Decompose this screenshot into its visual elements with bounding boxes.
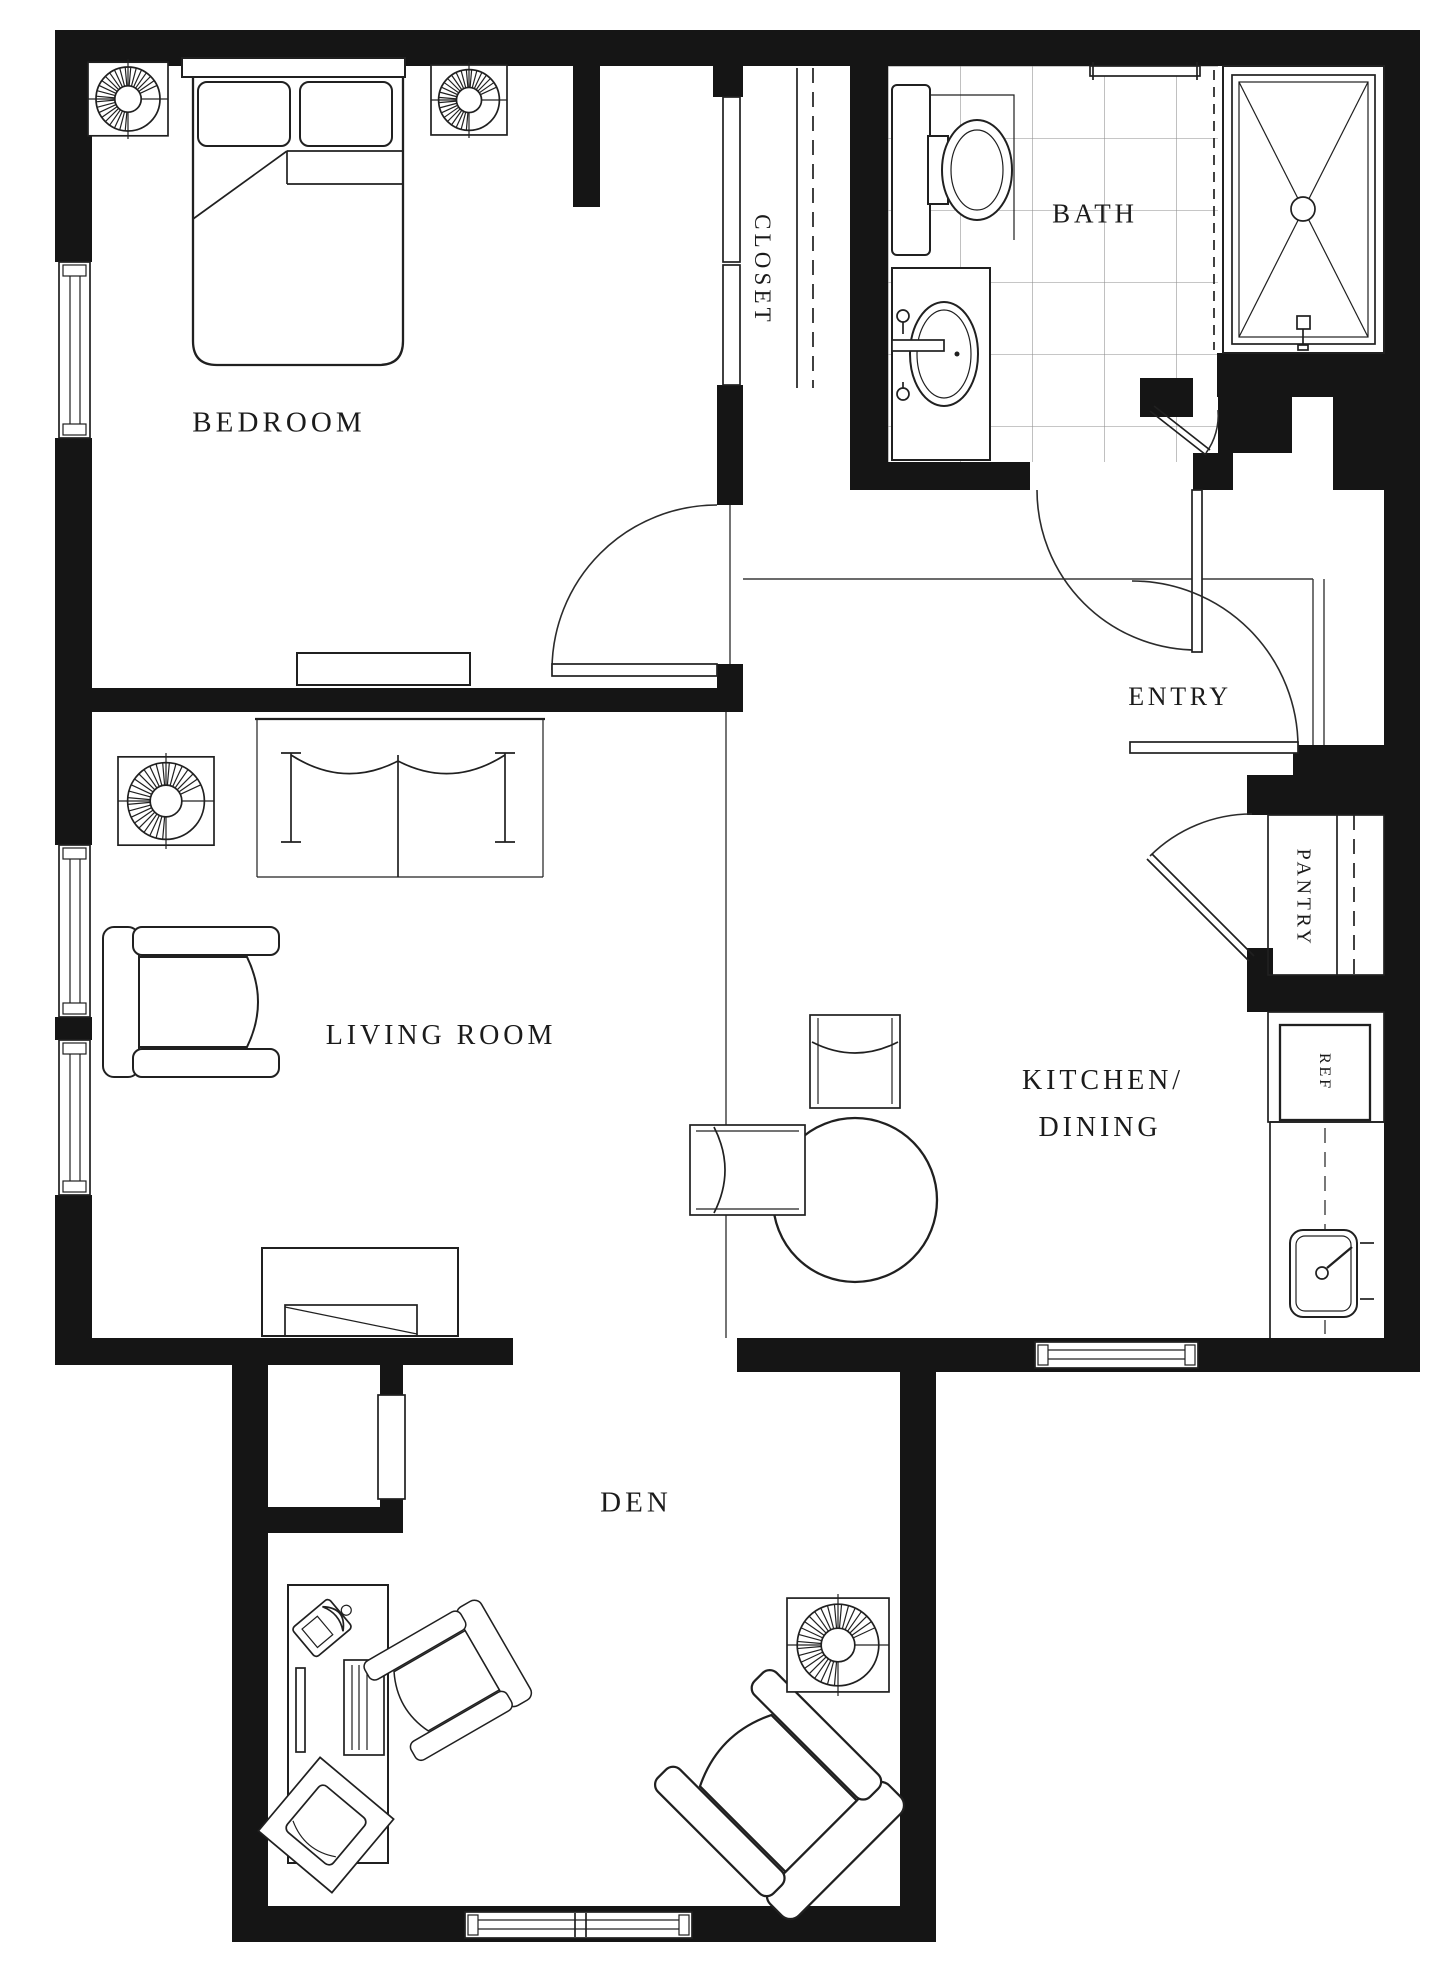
dining-label: DINING bbox=[1038, 1112, 1161, 1144]
hall-door bbox=[1037, 490, 1202, 652]
pantry-shelving bbox=[1268, 815, 1384, 975]
bath-label: BATH bbox=[1052, 199, 1138, 230]
kitchen-sink bbox=[1290, 1230, 1374, 1317]
closet-label: CLOSET bbox=[749, 214, 775, 326]
bed bbox=[182, 58, 405, 365]
dining-chair-west bbox=[690, 1125, 805, 1215]
dining-chair-north bbox=[810, 1015, 900, 1108]
ref-label: REF bbox=[1315, 1053, 1333, 1091]
ceiling-fan-bedroom-right bbox=[431, 62, 507, 138]
plan-drawing bbox=[0, 0, 1454, 1977]
den-armchair bbox=[651, 1666, 909, 1924]
living-room-window-upper bbox=[59, 845, 90, 1017]
ceiling-fan-bedroom-left bbox=[88, 59, 168, 139]
kitchen-window bbox=[1035, 1342, 1198, 1368]
bath-vanity-sink bbox=[892, 268, 990, 460]
pantry-label: PANTRY bbox=[1292, 849, 1315, 948]
floor-lines bbox=[726, 505, 1324, 1338]
den-label: DEN bbox=[600, 1487, 672, 1520]
bedroom-window bbox=[59, 262, 90, 438]
entry-label: ENTRY bbox=[1128, 682, 1231, 712]
ceiling-fan-den bbox=[787, 1594, 889, 1696]
bedroom-door bbox=[552, 505, 717, 676]
tv-cabinet bbox=[262, 1248, 458, 1336]
den-window bbox=[465, 1912, 692, 1938]
entry-door bbox=[1130, 581, 1298, 753]
bedroom-label: BEDROOM bbox=[192, 407, 365, 440]
pantry-door bbox=[1147, 814, 1254, 961]
living-room-window-lower bbox=[59, 1040, 90, 1195]
ceiling-fan-living-room bbox=[118, 753, 214, 849]
den-closet-opening bbox=[378, 1395, 405, 1499]
shower bbox=[1214, 66, 1384, 353]
living-armchair bbox=[103, 927, 279, 1077]
closet-doors bbox=[723, 97, 740, 385]
closet-shelving bbox=[797, 68, 813, 388]
floor-plan: BEDROOM CLOSET BATH ENTRY LIVING ROOM KI… bbox=[0, 0, 1454, 1977]
loveseat bbox=[255, 719, 545, 877]
kitchen-label: KITCHEN/ bbox=[1022, 1065, 1184, 1097]
dresser bbox=[297, 653, 470, 685]
living-room-label: LIVING ROOM bbox=[326, 1020, 557, 1052]
